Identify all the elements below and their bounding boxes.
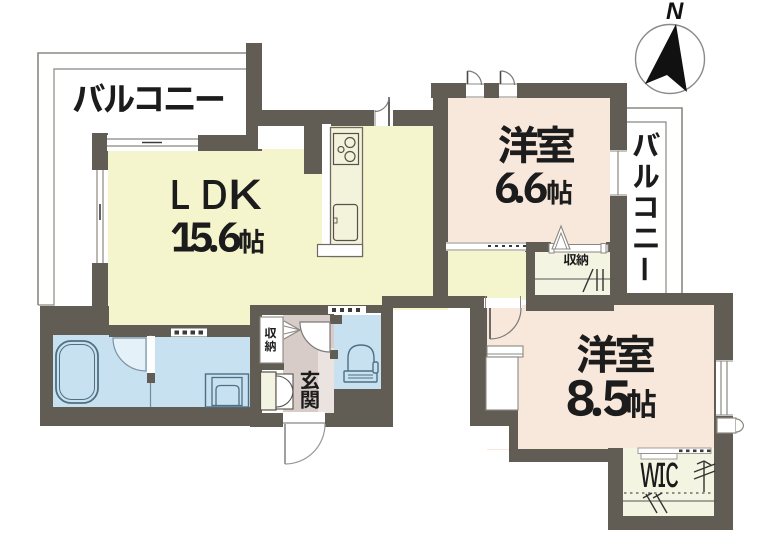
svg-text:N: N: [666, 0, 684, 25]
